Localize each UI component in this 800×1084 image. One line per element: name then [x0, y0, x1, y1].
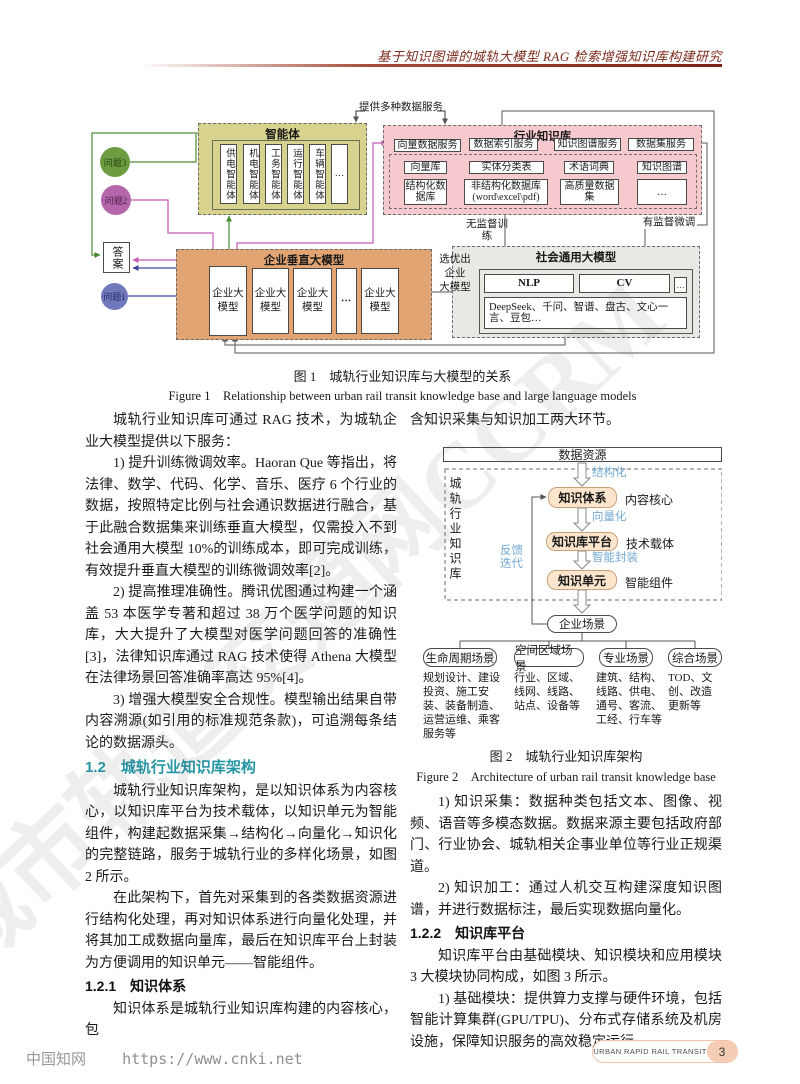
unsupervised-label: 无监督训练 [463, 219, 511, 243]
node-knowledge-unit: 知识单元 [547, 570, 617, 590]
role-kb-platform: 技术载体 [626, 535, 674, 552]
scenario-items: TOD、文创、改造更新等 [668, 671, 722, 713]
journal-page-badge: URBAN RAPID RAIL TRANSIT 3 [592, 1040, 738, 1063]
paragraph: 2) 知识加工：通过人机交互构建深度知识图谱，并进行数据标注，最后实现数据向量化… [410, 878, 722, 921]
general-more-box: … [674, 277, 687, 293]
select-best-label: 选优出 企业 大模型 [435, 253, 475, 295]
enterprise-model: 企业大模型 [252, 268, 289, 334]
fig1-caption-en: Figure 1 Relationship between urban rail… [85, 385, 720, 404]
running-head-title: 基于知识图谱的城轨大模型 RAG 检索增强知识库构建研究 [377, 46, 722, 65]
paragraph: 1) 提升训练微调效率。Haoran Que 等指出，将法律、数学、代码、化学、… [85, 453, 397, 582]
paragraph: 2) 提高推理准确性。腾讯优图通过构建一个涵盖 53 本医学专著和超过 38 万… [85, 582, 397, 690]
node-kb-platform: 知识库平台 [546, 532, 618, 551]
agent-box: 智能体 供电智能体 机电智能体 工务智能体 运行智能体 车辆智能体 … [198, 123, 367, 215]
agent-item: 运行智能体 [287, 144, 304, 204]
data-source-box: 数据资源 [443, 447, 722, 462]
paragraph: 含知识采集与知识加工两大环节。 [410, 410, 722, 432]
cnki-url[interactable]: https://www.cnki.net [122, 1050, 303, 1068]
role-knowledge-unit: 智能组件 [625, 574, 673, 591]
kb-store-more: … [637, 179, 687, 205]
page: 基于知识图谱的城轨大模型 RAG 检索增强知识库构建研究 城市轨道交通网CCRM [0, 0, 800, 1084]
vertical-llm-box: 企业垂直大模型 企业大模型 企业大模型 企业大模型 ••• 企业大模型 [176, 249, 432, 340]
scenario-box: 综合场景 [668, 648, 722, 667]
paragraph: 城轨行业知识库可通过 RAG 技术，为城轨企业大模型提供以下服务： [85, 410, 397, 453]
kb-store: 术语词典 [564, 161, 614, 174]
general-llm-box: 社会通用大模型 NLP CV … DeepSeek、千问、智谱、盘古、文心一言、… [452, 246, 700, 338]
kb-service: 数据索引服务 [469, 138, 538, 151]
kb-store: 非结构化数据库(word\excel\pdf) [464, 179, 548, 205]
feedback-loop-line [532, 497, 547, 624]
right-column: 1) 知识采集：数据种类包括文本、图像、视频、语音等多模态数据。数据来源主要包括… [410, 792, 722, 1053]
page-number: 3 [707, 1041, 737, 1062]
agent-item-more: … [331, 144, 348, 204]
fig2-side-label: 城轨行业知识库 [447, 477, 464, 597]
left-column: 城轨行业知识库可通过 RAG 技术，为城轨企业大模型提供以下服务： 1) 提升训… [85, 410, 397, 1042]
step-vector: 向量化 [592, 511, 627, 524]
question2-node: 问题2 [101, 185, 131, 215]
nlp-box: NLP [484, 274, 574, 293]
agent-box-title: 智能体 [199, 126, 366, 142]
general-models-list: DeepSeek、千问、智谱、盘古、文心一言、豆包… [484, 297, 687, 329]
right-column-top: 含知识采集与知识加工两大环节。 [410, 410, 722, 432]
kb-store: 实体分类表 [469, 161, 544, 174]
paragraph: 知识库平台由基础模块、知识模块和应用模块 3 大模块协同构成，如图 3 所示。 [410, 946, 722, 989]
line-q3 [130, 134, 196, 162]
scenario-items: 行业、区域、线网、线路、站点、设备等 [514, 671, 586, 713]
fig1-caption-zh: 图 1 城轨行业知识库与大模型的关系 [85, 366, 720, 385]
agent-item: 工务智能体 [265, 144, 282, 204]
scenario-items: 建筑、结构、线路、供电、通号、客流、工经、行车等 [596, 671, 672, 727]
supervised-label: 有监督微调 [641, 217, 697, 229]
journal-name: URBAN RAPID RAIL TRANSIT [593, 1041, 707, 1062]
scenario-box: 空间区域场景 [514, 648, 584, 667]
fig1-service-label: 提供多种数据服务 [353, 102, 449, 114]
paragraph: 1) 知识采集：数据种类包括文本、图像、视频、语音等多模态数据。数据来源主要包括… [410, 792, 722, 878]
figure-1: 提供多种数据服务 问题3 问题2 问题1 答案 智能体 供电智能体 机电智能体 … [85, 98, 720, 362]
cv-box: CV [579, 274, 670, 293]
paragraph: 城轨行业知识库架构，是以知识体系为内容核心，以知识库平台为技术载体，以知识单元为… [85, 781, 397, 889]
enterprise-model: 企业大模型 [209, 266, 247, 336]
block-arrow-to-scene [574, 590, 590, 613]
block-arrow-vector [574, 508, 590, 531]
section-heading-1-2-2: 1.2.2 知识库平台 [410, 923, 722, 945]
question1-node: 问题1 [101, 283, 128, 310]
enterprise-scene-box: 企业场景 [547, 615, 617, 633]
cnki-footer: 中国知网 https://www.cnki.net [26, 1048, 303, 1069]
section-heading-1-2: 1.2 城轨行业知识库架构 [85, 757, 397, 779]
scenario-box: 专业场景 [599, 648, 653, 667]
enterprise-model: 企业大模型 [361, 268, 399, 334]
fig2-caption-zh: 图 2 城轨行业知识库架构 [410, 746, 722, 765]
kb-service: 数据集服务 [628, 138, 694, 151]
scenario-items: 规划设计、建设投资、施工安装、装备制造、运营运维、乘客服务等 [423, 671, 501, 741]
step-structure: 结构化 [592, 467, 627, 480]
role-knowledge-system: 内容核心 [625, 491, 673, 508]
block-arrow-encapsulate [574, 551, 590, 569]
step-encapsulate: 智能封装 [592, 552, 638, 565]
general-llm-title: 社会通用大模型 [453, 249, 699, 265]
kb-store: 知识图谱 [637, 161, 687, 174]
answer-node: 答案 [103, 242, 130, 273]
agent-item: 供电智能体 [220, 144, 237, 204]
kb-service: 向量数据服务 [394, 139, 461, 152]
agent-item: 车辆智能体 [309, 144, 326, 204]
scenario-box: 生命周期场景 [423, 648, 497, 667]
header-rule [138, 64, 722, 67]
paragraph: 3) 增强大模型安全合规性。模型输出结果自带内容溯源(如引用的标准规范条款)，可… [85, 690, 397, 755]
agent-item: 机电智能体 [243, 144, 260, 204]
industry-kb-box: 行业知识库 向量数据服务 数据索引服务 知识图谱服务 数据集服务 向量库 实体分… [383, 125, 702, 215]
kb-service: 知识图谱服务 [554, 138, 621, 151]
enterprise-model-more: ••• [336, 268, 357, 334]
feedback-label: 反馈迭代 [500, 545, 528, 571]
paragraph: 在此架构下，首先对采集到的各类数据资源进行结构化处理，再对知识体系进行向量化处理… [85, 888, 397, 974]
paragraph: 知识体系是城轨行业知识库构建的内容核心，包 [85, 999, 397, 1042]
node-knowledge-system: 知识体系 [548, 487, 617, 508]
figure-2: 数据资源 城轨行业知识库 反馈迭代 结构化 向量化 智能封装 知识体系 内容核心… [420, 445, 722, 795]
enterprise-model: 企业大模型 [293, 268, 332, 334]
kb-store: 结构化数据库 [404, 179, 447, 205]
kb-store: 高质量数据集 [560, 179, 619, 205]
cnki-name: 中国知网 [26, 1052, 86, 1068]
fig2-caption-en: Figure 2 Architecture of urban rail tran… [410, 766, 722, 785]
block-arrow-structure [574, 463, 590, 486]
question3-node: 问题3 [100, 147, 130, 177]
kb-store: 向量库 [404, 161, 447, 174]
section-heading-1-2-1: 1.2.1 知识体系 [85, 976, 397, 998]
